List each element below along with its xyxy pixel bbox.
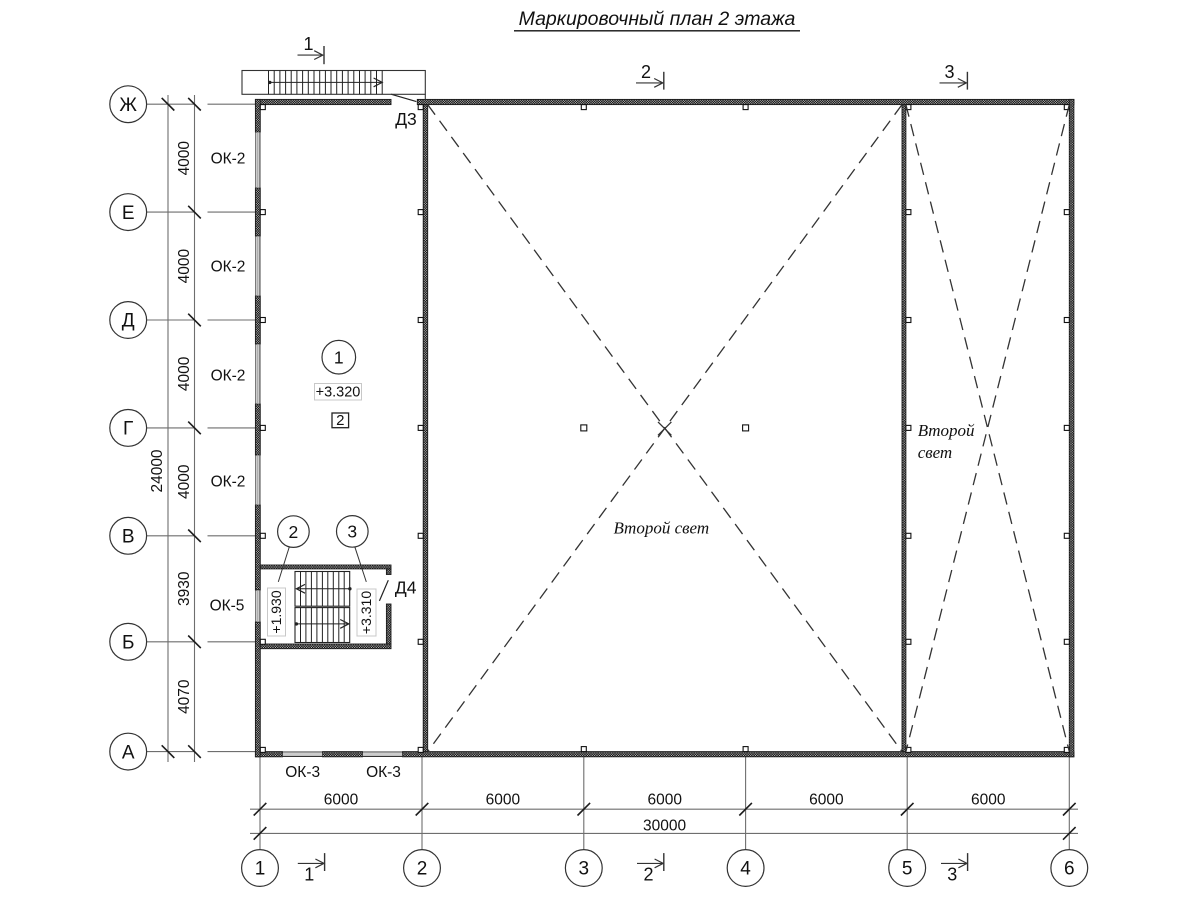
svg-text:В: В xyxy=(122,527,135,548)
svg-text:ОК-2: ОК-2 xyxy=(211,150,246,167)
svg-text:Д4: Д4 xyxy=(395,577,417,597)
svg-text:6000: 6000 xyxy=(647,792,682,809)
svg-text:3930: 3930 xyxy=(176,571,193,606)
svg-text:Ж: Ж xyxy=(119,95,137,116)
svg-text:4000: 4000 xyxy=(176,248,193,283)
svg-text:ОК-2: ОК-2 xyxy=(211,368,246,385)
svg-text:2: 2 xyxy=(289,522,299,542)
svg-text:свет: свет xyxy=(918,443,953,462)
svg-text:Второй свет: Второй свет xyxy=(613,519,709,538)
svg-text:ОК-3: ОК-3 xyxy=(285,764,320,781)
svg-text:5: 5 xyxy=(902,859,913,880)
svg-text:1: 1 xyxy=(255,859,266,880)
svg-text:Второй: Второй xyxy=(918,421,975,440)
svg-text:1: 1 xyxy=(303,34,313,54)
svg-text:2: 2 xyxy=(336,412,344,429)
svg-text:6000: 6000 xyxy=(486,792,521,809)
svg-text:Г: Г xyxy=(123,419,133,440)
svg-text:3: 3 xyxy=(347,522,357,542)
svg-text:3: 3 xyxy=(579,859,590,880)
svg-text:+3.320: +3.320 xyxy=(316,384,361,400)
svg-text:+3.310: +3.310 xyxy=(358,591,374,634)
svg-text:4000: 4000 xyxy=(176,356,193,391)
svg-text:1: 1 xyxy=(334,347,344,367)
svg-text:+1.930: +1.930 xyxy=(268,590,284,633)
svg-text:Е: Е xyxy=(122,203,135,224)
svg-text:А: А xyxy=(122,742,135,763)
svg-text:4070: 4070 xyxy=(176,679,193,714)
svg-text:4000: 4000 xyxy=(176,464,193,499)
svg-text:4000: 4000 xyxy=(176,141,193,176)
svg-text:Б: Б xyxy=(122,633,134,654)
svg-text:30000: 30000 xyxy=(643,818,686,835)
svg-text:2: 2 xyxy=(417,859,428,880)
svg-text:3: 3 xyxy=(947,865,957,885)
svg-text:2: 2 xyxy=(641,62,651,82)
svg-text:6000: 6000 xyxy=(809,792,844,809)
svg-text:Маркировочный план 2 этажа: Маркировочный план 2 этажа xyxy=(519,8,796,30)
svg-text:3: 3 xyxy=(944,62,954,82)
svg-text:ОК-3: ОК-3 xyxy=(366,764,401,781)
svg-text:2: 2 xyxy=(643,865,653,885)
svg-text:1: 1 xyxy=(304,865,314,885)
svg-text:ОК-5: ОК-5 xyxy=(210,598,245,615)
svg-text:24000: 24000 xyxy=(149,449,166,492)
svg-text:Д3: Д3 xyxy=(395,109,417,129)
svg-text:Д: Д xyxy=(122,311,135,332)
svg-text:6: 6 xyxy=(1064,859,1075,880)
svg-text:6000: 6000 xyxy=(971,792,1006,809)
svg-text:ОК-2: ОК-2 xyxy=(211,474,246,491)
svg-text:4: 4 xyxy=(740,859,751,880)
svg-text:6000: 6000 xyxy=(324,792,359,809)
svg-text:ОК-2: ОК-2 xyxy=(211,259,246,276)
